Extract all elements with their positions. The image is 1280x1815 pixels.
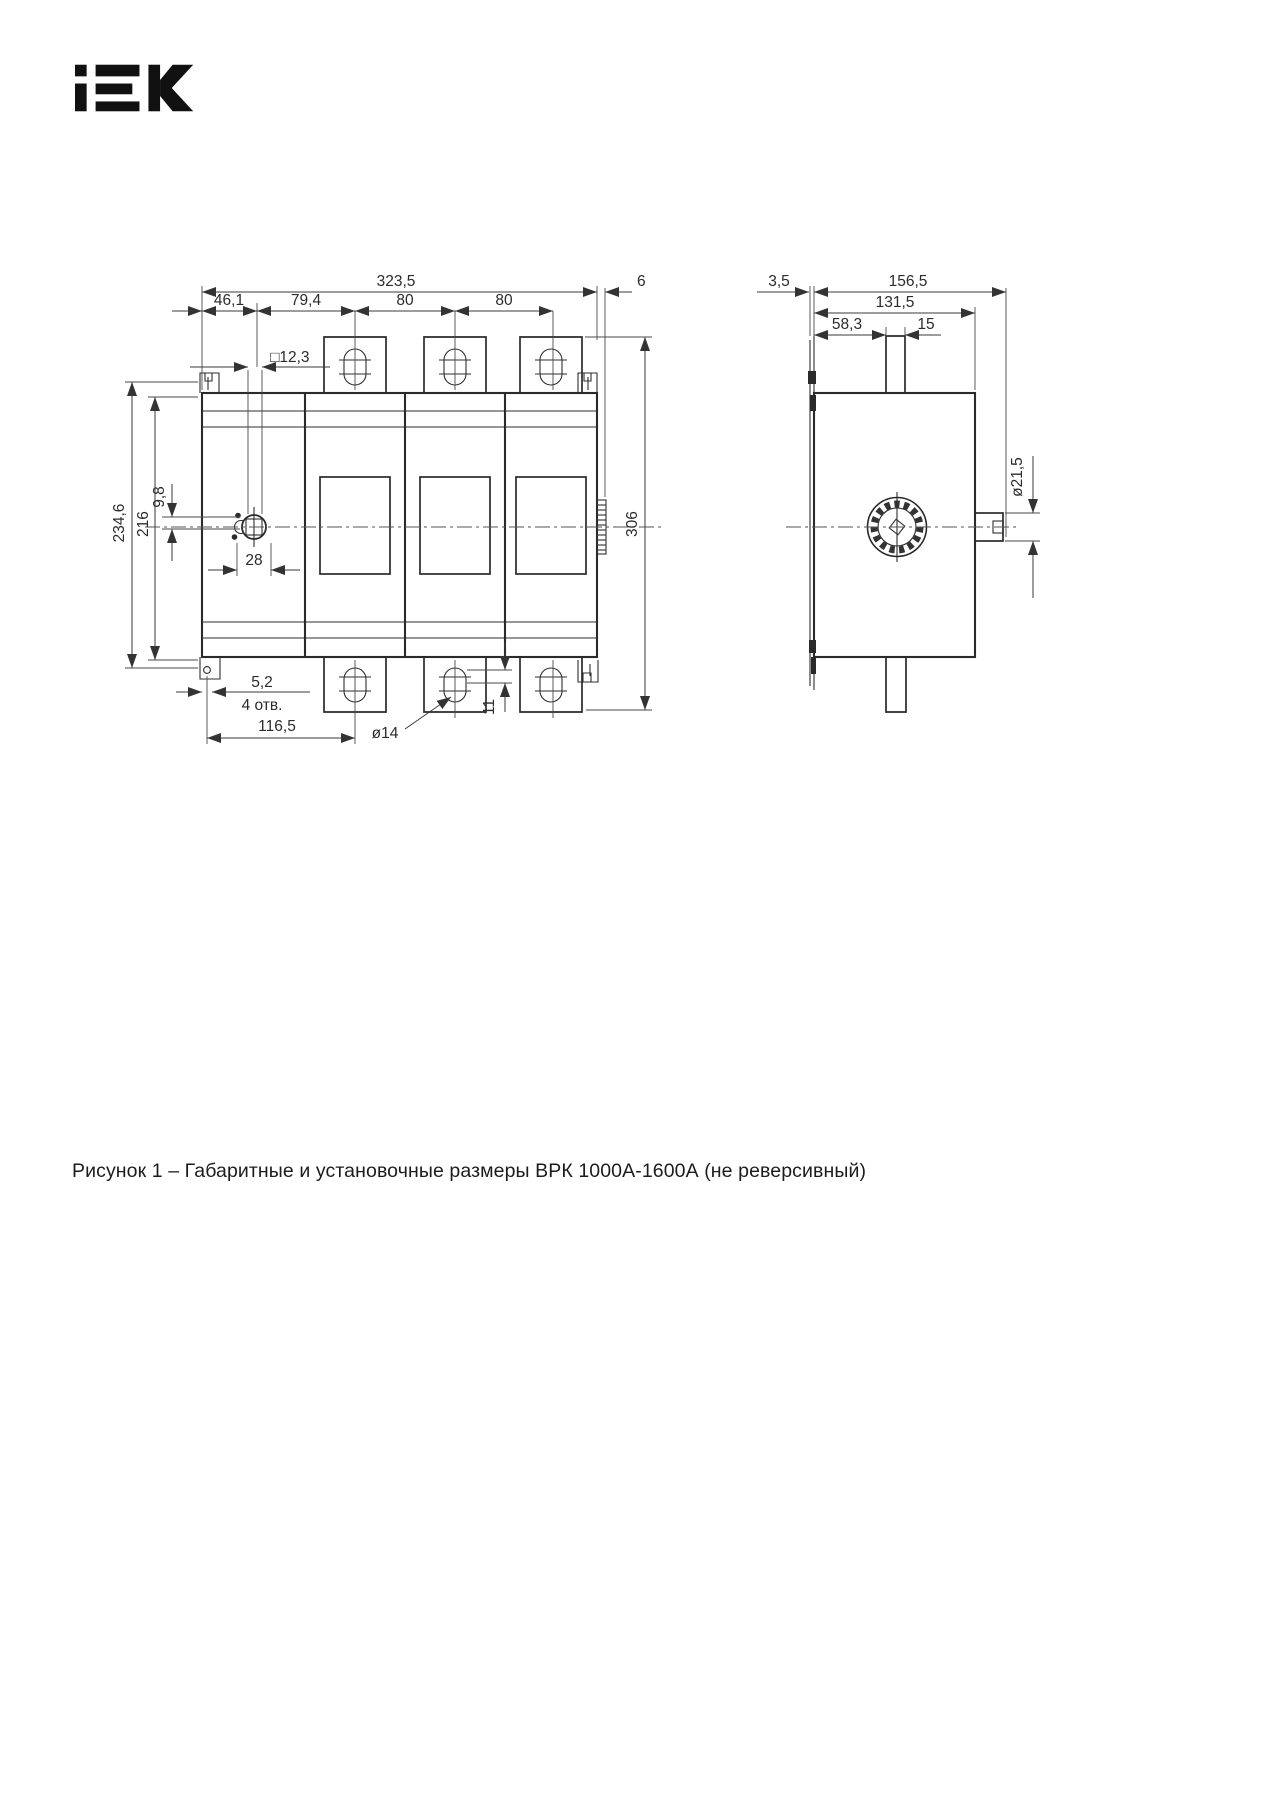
dim-total-width: 323,5: [377, 273, 416, 290]
dim-total-height-306: 306: [624, 511, 641, 537]
figure-caption: Рисунок 1 – Габаритные и установочные ра…: [72, 1160, 866, 1183]
dim-total-depth-156-5: 156,5: [889, 273, 928, 290]
dim-offset-58-3: 58,3: [832, 316, 862, 333]
dim-gap-6: 6: [637, 273, 646, 290]
dim-height-234-6: 234,6: [111, 504, 128, 543]
dim-body-depth-131-5: 131,5: [876, 294, 915, 311]
dimension-drawing: 323,5 46,1 79,4 80 80 □12,3 9,8: [0, 0, 1280, 1815]
dim-holes-count: 4 отв.: [242, 697, 283, 714]
dim-width-28: 28: [245, 552, 262, 569]
document-page: IEK: [0, 0, 1280, 1815]
bottom-terminal-tabs: [324, 657, 582, 744]
dim-seg-80a: 80: [396, 292, 414, 309]
top-terminal-tabs: [324, 311, 582, 393]
dim-shaft-15: 15: [917, 316, 934, 333]
dim-dist-116-5: 116,5: [258, 718, 296, 735]
side-view-drawing: [786, 336, 1018, 712]
dim-square-hole: □12,3: [270, 349, 310, 366]
front-view-dimensions: 323,5 46,1 79,4 80 80 □12,3 9,8: [111, 273, 652, 744]
dim-offset-9-8: 9,8: [151, 486, 168, 508]
dim-slot-dia-14: ø14: [372, 725, 399, 742]
dim-height-216: 216: [135, 511, 152, 537]
dim-plate-3-5: 3,5: [768, 273, 790, 290]
dim-seg-79-4: 79,4: [291, 292, 322, 309]
dim-seg-46-1: 46,1: [214, 292, 244, 309]
dim-hole-5-2: 5,2: [251, 674, 273, 691]
front-view-drawing: [145, 311, 662, 744]
dim-shaft-dia-21-5: ø21,5: [1009, 457, 1026, 497]
dim-seg-80b: 80: [495, 292, 513, 309]
dim-offset-11: 11: [481, 699, 498, 715]
